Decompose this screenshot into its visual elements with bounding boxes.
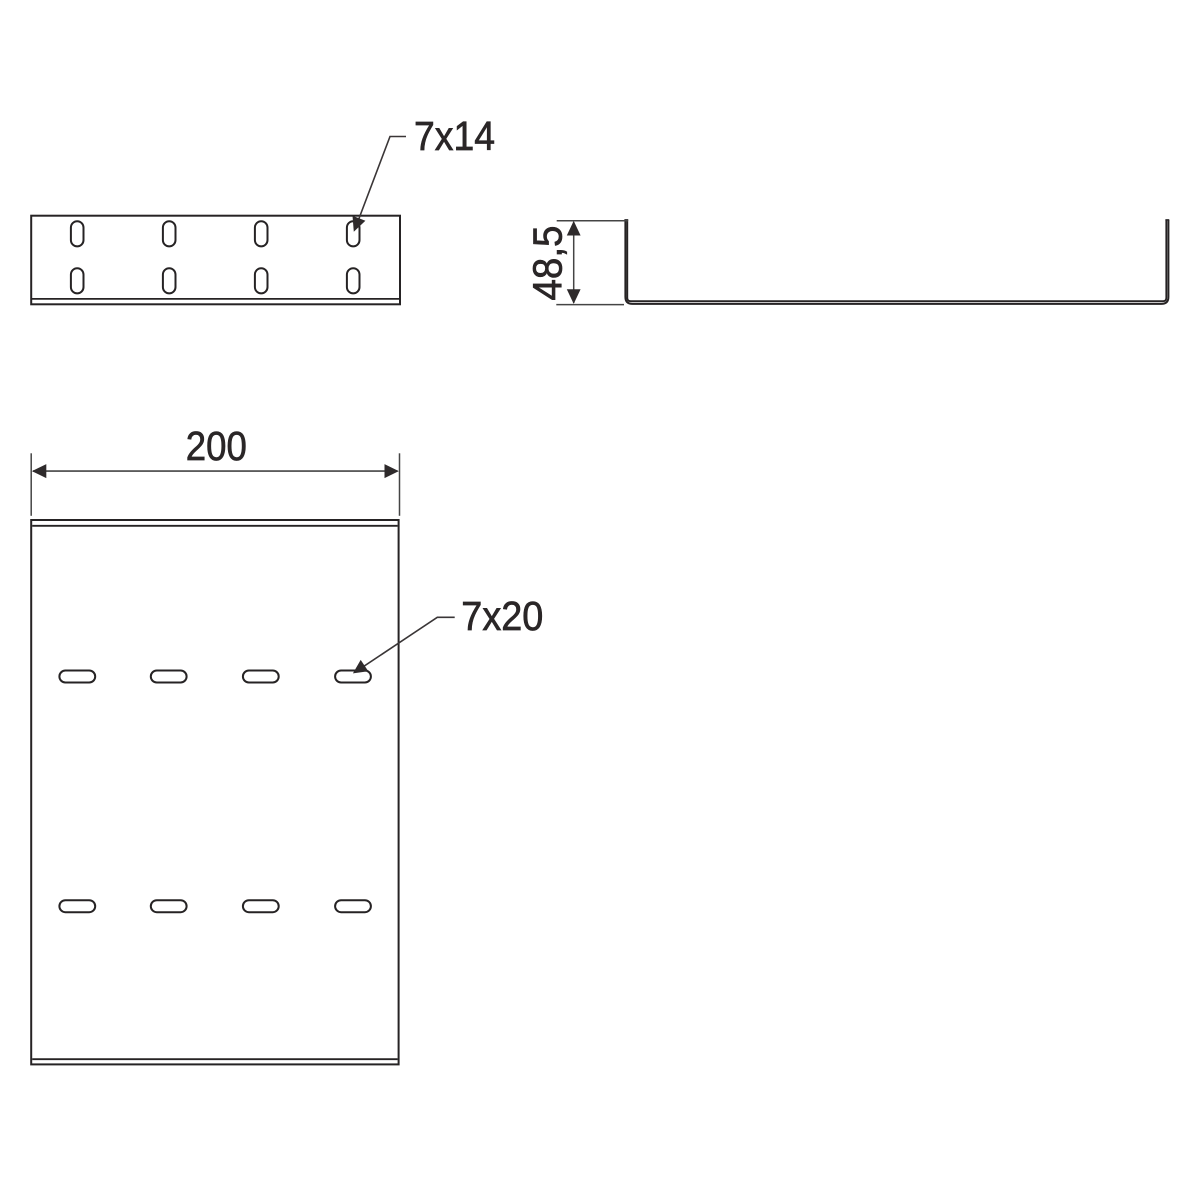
- svg-text:200: 200: [186, 423, 247, 469]
- svg-text:7x20: 7x20: [461, 593, 543, 639]
- svg-text:48,5: 48,5: [525, 226, 571, 301]
- svg-text:7x14: 7x14: [414, 113, 495, 159]
